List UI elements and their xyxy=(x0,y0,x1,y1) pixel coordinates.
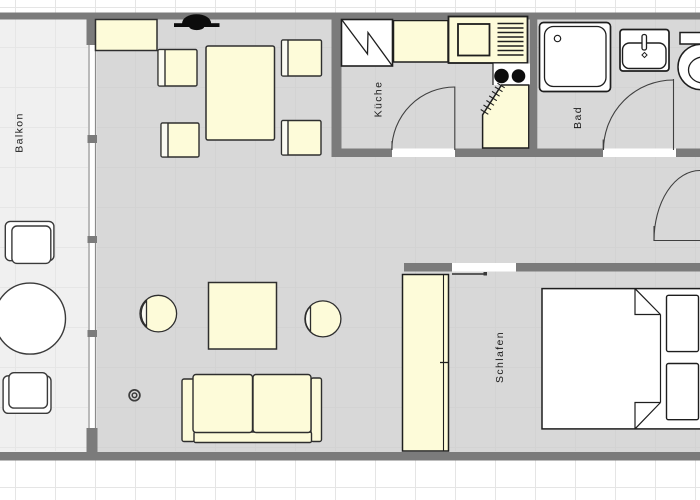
svg-text:Balkon: Balkon xyxy=(14,112,26,153)
svg-text:Bad: Bad xyxy=(572,106,584,129)
svg-text:Küche: Küche xyxy=(373,81,385,118)
svg-text:Schlafen: Schlafen xyxy=(494,331,506,383)
